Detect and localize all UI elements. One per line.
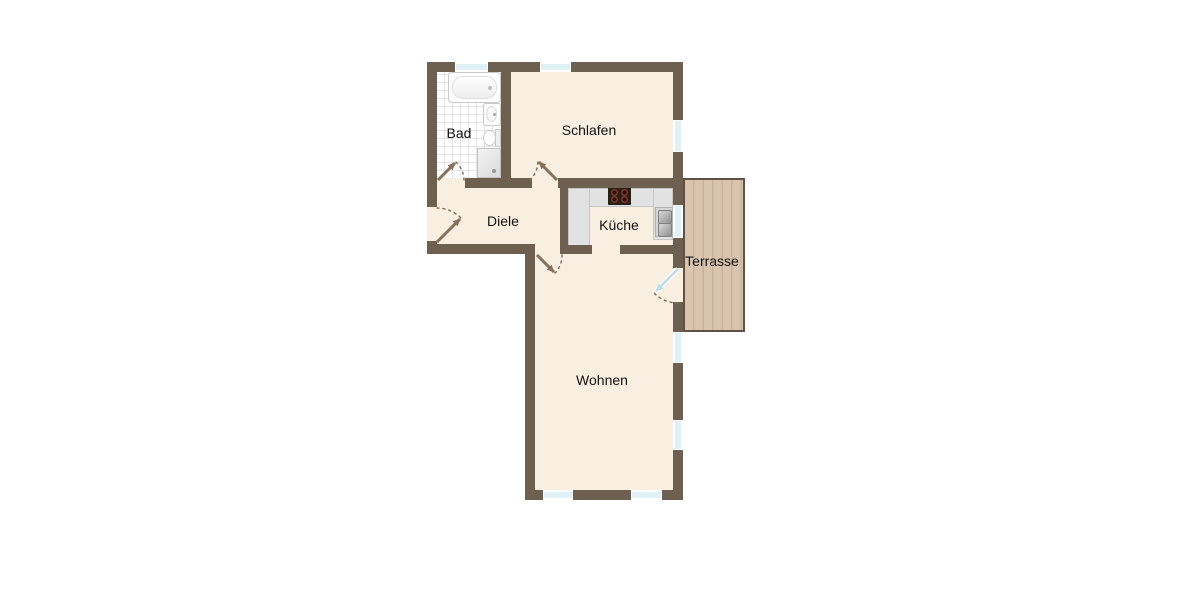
floor-plan: Bad Schlafen Diele Küche Terrasse Wohnen — [0, 0, 1200, 600]
door-swing-overlay — [0, 0, 1200, 600]
terrace-glass-door-icon — [654, 269, 678, 303]
room-label-bad: Bad — [447, 125, 472, 141]
room-label-wohnen: Wohnen — [576, 372, 628, 388]
room-label-terrasse: Terrasse — [685, 253, 739, 269]
room-label-diele: Diele — [487, 213, 519, 229]
entrance-door-icon — [437, 208, 461, 242]
room-label-kueche: Küche — [599, 217, 639, 233]
bedroom-door-icon — [530, 161, 557, 180]
room-label-schlafen: Schlafen — [562, 122, 616, 138]
bathroom-door-icon — [438, 162, 464, 180]
hallway-living-door-icon — [537, 255, 562, 273]
